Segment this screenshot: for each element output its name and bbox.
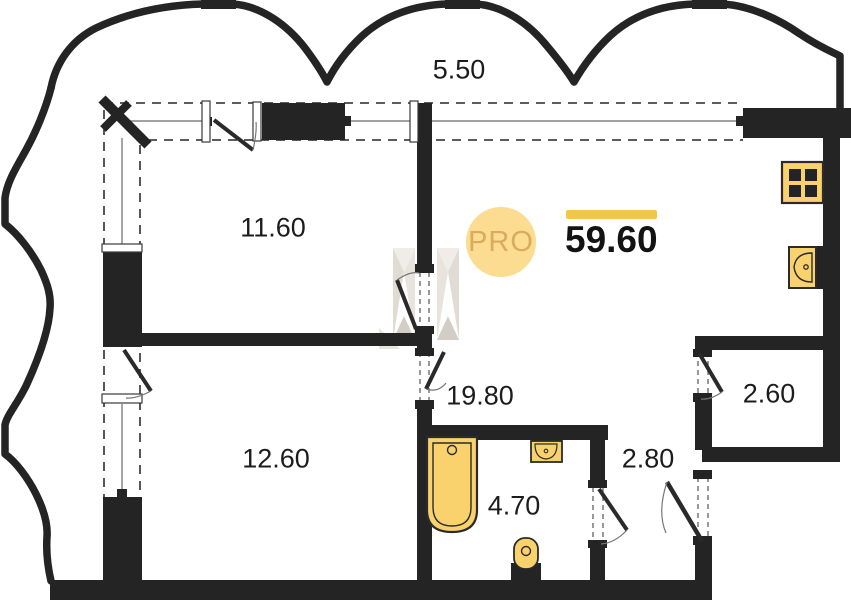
bathtub-icon: [427, 437, 477, 532]
area-label-bathroom: 4.70: [488, 493, 541, 520]
door-wardrobe: [699, 353, 722, 399]
total-area-accent-bar: [566, 210, 657, 219]
balcony-door-room-2: [124, 350, 151, 398]
area-label-wardrobe: 2.60: [743, 381, 796, 408]
stove-icon: [782, 162, 823, 203]
pro-badge-label: PRO: [468, 228, 534, 257]
floor-plan-canvas: 5.50 11.60 12.60 19.80 4.70 2.80 2.60 59…: [0, 0, 851, 600]
window-jamb-frames: [102, 101, 418, 403]
area-label-room-1: 11.60: [240, 215, 306, 242]
kitchen-sink-icon: [789, 246, 824, 289]
total-area-value: 59.60: [565, 221, 658, 258]
area-label-hallway: 2.80: [622, 446, 675, 473]
pro-badge: PRO: [466, 207, 536, 277]
entrance-door: [662, 482, 702, 541]
toilet-icon: [511, 538, 541, 580]
floor-plan-drawing: [0, 0, 851, 600]
corner-diagonal-column: [102, 99, 148, 145]
area-label-room-2: 12.60: [242, 446, 310, 473]
dimension-label-top: 5.50: [433, 57, 486, 84]
area-label-kitchen-living: 19.80: [446, 383, 514, 410]
balcony-door-room-1: [214, 120, 256, 150]
bathroom-sink-icon: [531, 437, 562, 462]
